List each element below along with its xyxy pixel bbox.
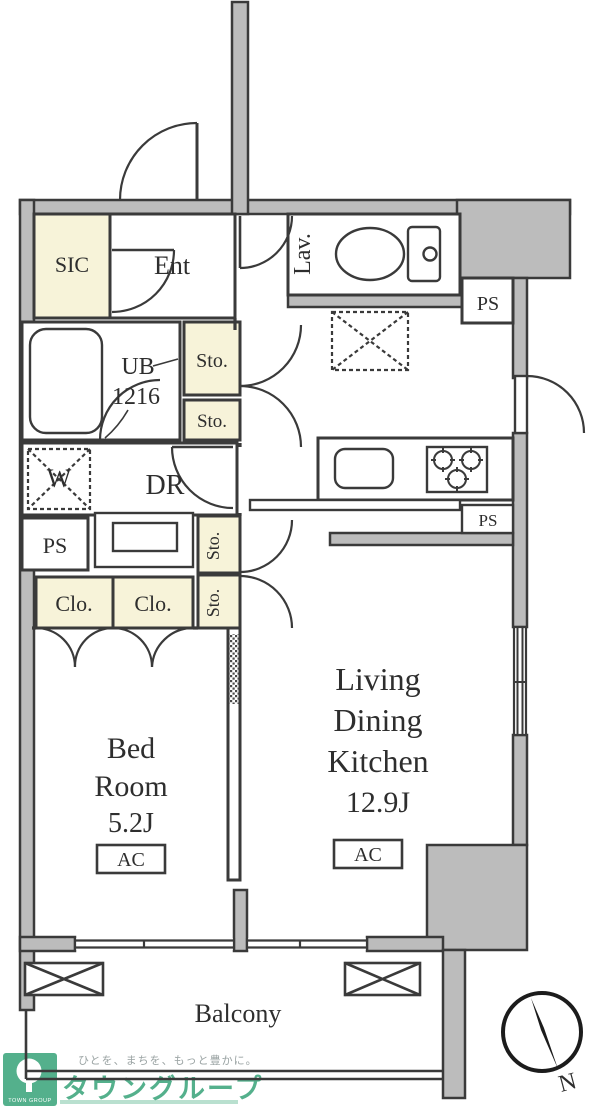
- label-pipe-space-left: PS: [43, 533, 67, 558]
- label-ldk-2: Dining: [334, 702, 423, 738]
- wall-top-spur: [232, 2, 248, 214]
- entrance-door: [120, 123, 197, 200]
- compass-needle: [531, 998, 558, 1069]
- wall-block-top-right: [457, 200, 570, 278]
- label-pipe-space-kitchen: PS: [479, 511, 498, 530]
- label-entrance: Ent: [154, 251, 191, 280]
- label-dressing-room: DR: [146, 470, 185, 501]
- logo-tree-trunk: [26, 1079, 32, 1092]
- wall-bottom-left-seg: [20, 937, 75, 951]
- label-closet-2: Clo.: [134, 591, 171, 616]
- label-ldk-1: Living: [335, 661, 420, 697]
- hall-storage-doors: [240, 325, 301, 447]
- floor-plan-svg: TOWN GROUP ひとを、まちを、もっと豊かに。 タウングループ SIC E…: [0, 0, 600, 1106]
- label-bedroom-1: Bed: [107, 732, 155, 765]
- wall-right-mid: [513, 433, 527, 627]
- vanity-basin: [113, 523, 177, 551]
- refrigerator-space: [332, 312, 408, 370]
- label-ac-ldk: AC: [354, 844, 382, 866]
- wall-kitchen-partition: [330, 533, 513, 545]
- balcony-hatch-left: [25, 963, 103, 995]
- wall-bottom-mullion: [234, 890, 247, 951]
- wall-block-bottom-right: [427, 845, 527, 950]
- label-unit-bath: UB: [121, 354, 154, 380]
- brand-tagline: ひとを、まちを、もっと豊かに。: [78, 1054, 258, 1067]
- label-storage-4: Sto.: [203, 589, 223, 618]
- bedroom-closet-doors: [36, 628, 193, 667]
- wall-balcony-right: [443, 950, 465, 1098]
- balcony-hatch-right: [345, 963, 420, 995]
- toilet-bowl: [336, 228, 404, 280]
- label-shoe-closet: SIC: [55, 252, 89, 277]
- label-washer: W: [47, 464, 72, 493]
- compass-north-label: N: [556, 1068, 579, 1098]
- toilet-handle: [424, 248, 437, 261]
- corridor-storage-doors: [240, 520, 292, 628]
- label-ac-bedroom: AC: [117, 849, 145, 871]
- brand-company: タウングループ: [62, 1073, 263, 1104]
- logo-caption: TOWN GROUP: [8, 1098, 51, 1104]
- toilet: [336, 227, 440, 281]
- label-storage-2: Sto.: [197, 411, 227, 432]
- kitchen-sink: [335, 449, 393, 488]
- label-ldk-3: Kitchen: [327, 743, 428, 779]
- compass: N: [503, 993, 581, 1098]
- label-storage-3: Sto.: [203, 532, 223, 561]
- kitchen-counter-front: [250, 500, 460, 510]
- bathtub: [30, 329, 102, 433]
- label-balcony: Balcony: [195, 999, 282, 1028]
- ac-units: AC AC: [97, 840, 402, 873]
- label-storage-1: Sto.: [196, 350, 228, 372]
- label-ldk-size: 12.9J: [346, 786, 411, 819]
- lavatory-door: [240, 216, 292, 268]
- wall-bottom-right-seg: [367, 937, 443, 951]
- wall-right-upper: [513, 278, 527, 378]
- label-pipe-space-top: PS: [477, 293, 499, 315]
- label-unit-bath-size: 1216: [112, 384, 160, 410]
- label-lavatory: Lav.: [290, 233, 316, 275]
- partition-hatch: [229, 634, 239, 704]
- label-closet-1: Clo.: [55, 591, 92, 616]
- label-bedroom-size: 5.2J: [108, 808, 154, 839]
- floor-plan: TOWN GROUP ひとを、まちを、もっと豊かに。 タウングループ SIC E…: [0, 0, 600, 1106]
- wall-right-lower: [513, 735, 527, 845]
- label-bedroom-2: Room: [94, 770, 167, 803]
- ldk-side-door: [515, 376, 584, 433]
